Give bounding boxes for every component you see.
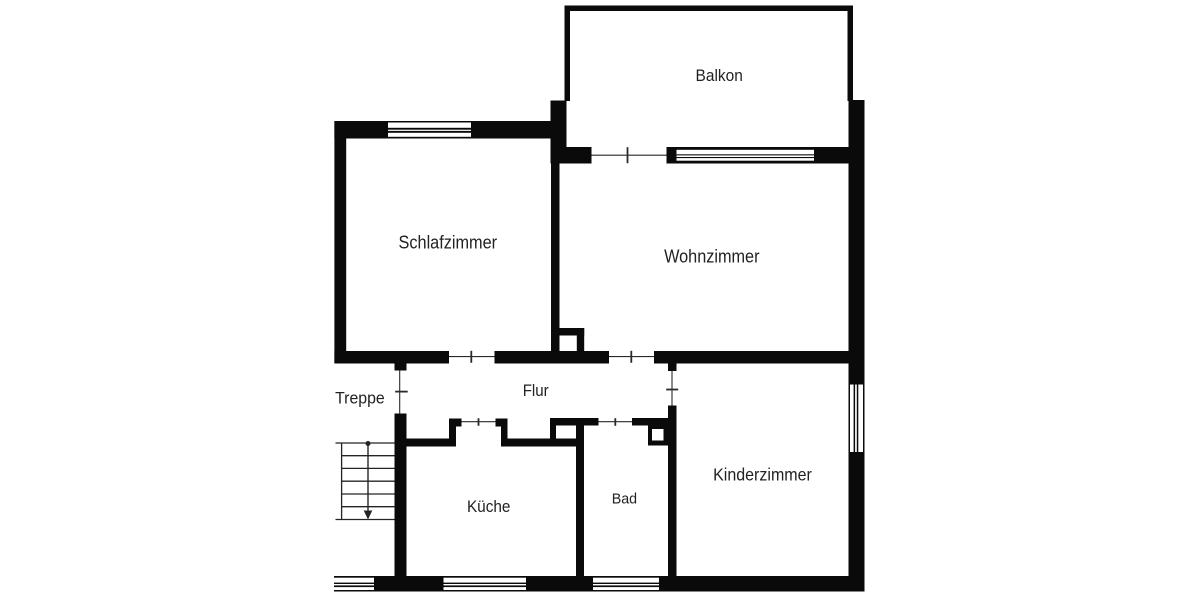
svg-text:Wohnzimmer: Wohnzimmer [664,247,759,267]
svg-text:Küche: Küche [467,497,511,516]
svg-text:Balkon: Balkon [696,66,743,85]
svg-text:Schlafzimmer: Schlafzimmer [399,232,498,253]
svg-text:Bad: Bad [612,491,637,507]
svg-text:Flur: Flur [523,381,549,400]
svg-text:Kinderzimmer: Kinderzimmer [713,465,812,485]
svg-text:Treppe: Treppe [335,389,385,407]
